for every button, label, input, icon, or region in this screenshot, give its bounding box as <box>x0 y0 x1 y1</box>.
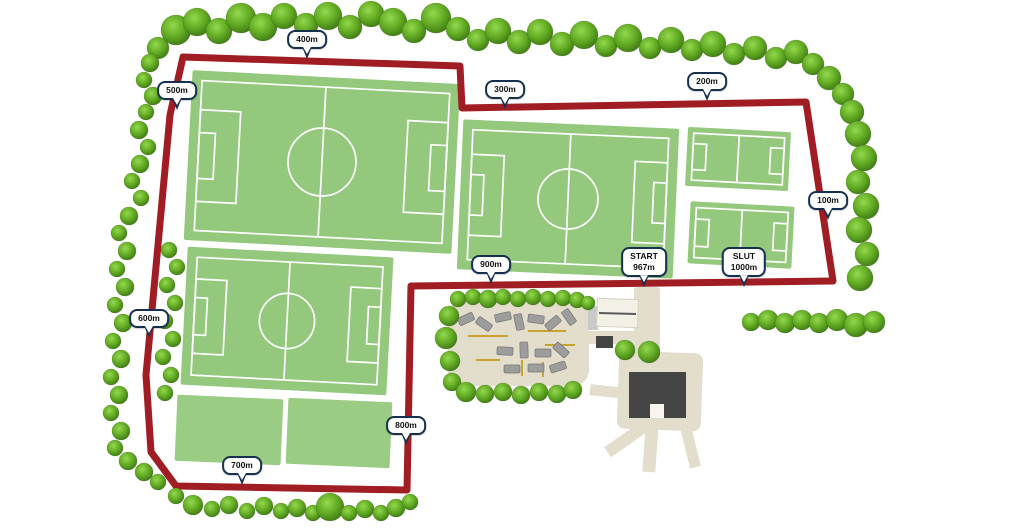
tree <box>110 386 128 404</box>
tree <box>111 225 127 241</box>
tree <box>845 121 871 147</box>
marker-label: 400m <box>296 34 318 45</box>
tree <box>743 36 767 60</box>
tree <box>809 313 829 333</box>
clubhouse-door <box>650 404 664 418</box>
marker-sublabel: 967m <box>630 262 658 273</box>
tree <box>595 35 617 57</box>
route-marker-300m: 300m <box>485 80 525 99</box>
tree <box>116 278 134 296</box>
tree <box>639 37 661 59</box>
tree <box>165 331 181 347</box>
marker-label: 800m <box>395 420 417 431</box>
tree <box>742 313 760 331</box>
route-marker-500m: 500m <box>157 81 197 100</box>
pitch-full <box>181 247 394 396</box>
marker-label: 600m <box>138 313 160 324</box>
route-marker-400m: 400m <box>287 30 327 49</box>
tree <box>494 383 512 401</box>
route-marker-start: START967m <box>621 247 667 277</box>
tree <box>107 297 123 313</box>
route-marker-finish: SLUT1000m <box>722 247 766 277</box>
tree <box>510 291 526 307</box>
tree <box>564 381 582 399</box>
tree <box>758 310 778 330</box>
course-map: 100m 200m 300m 400m 500m 600m 700m 800m … <box>0 0 1024 529</box>
tree <box>103 405 119 421</box>
marker-label: 200m <box>696 76 718 87</box>
tree <box>112 422 130 440</box>
tree <box>168 488 184 504</box>
tree <box>847 265 873 291</box>
tree <box>840 100 864 124</box>
tree <box>356 500 374 518</box>
marker-label: SLUT <box>731 251 757 262</box>
tree <box>204 501 220 517</box>
tree <box>479 290 497 308</box>
tree <box>140 139 156 155</box>
tree <box>581 296 595 310</box>
tree <box>157 385 173 401</box>
route-marker-600m: 600m <box>129 309 169 328</box>
tree <box>476 385 494 403</box>
tree <box>548 385 566 403</box>
tree <box>435 327 457 349</box>
tree <box>863 311 885 333</box>
tree <box>723 43 745 65</box>
tree <box>570 21 598 49</box>
parked-car <box>520 342 529 358</box>
tree <box>239 503 255 519</box>
pitch-full <box>184 70 461 254</box>
tree <box>792 310 812 330</box>
tree <box>138 104 154 120</box>
tree <box>103 369 119 385</box>
tree <box>112 350 130 368</box>
tree <box>273 503 289 519</box>
tree <box>456 382 476 402</box>
tree <box>163 367 179 383</box>
tree <box>130 121 148 139</box>
tree <box>615 340 635 360</box>
tree <box>495 289 511 305</box>
tree <box>851 145 877 171</box>
tree <box>150 474 166 490</box>
marker-label: START <box>630 251 658 262</box>
tree <box>118 242 136 260</box>
route-marker-100m: 100m <box>808 191 848 210</box>
tree <box>465 289 481 305</box>
marker-label: 300m <box>494 84 516 95</box>
tree <box>658 27 684 53</box>
tree <box>131 155 149 173</box>
small-outbuilding <box>596 336 613 348</box>
route-marker-900m: 900m <box>471 255 511 274</box>
marker-label: 700m <box>231 460 253 471</box>
tree <box>530 383 548 401</box>
parked-car <box>535 349 551 357</box>
tree <box>775 313 795 333</box>
tree <box>512 386 530 404</box>
marker-label: 500m <box>166 85 188 96</box>
tree <box>855 242 879 266</box>
tree <box>220 496 238 514</box>
tree <box>440 351 460 371</box>
tree <box>288 499 306 517</box>
parked-car <box>528 364 544 372</box>
parked-car <box>497 347 513 356</box>
parked-car <box>504 365 520 373</box>
tree <box>255 497 273 515</box>
parked-car <box>528 314 545 324</box>
tree <box>525 289 541 305</box>
tree <box>105 333 121 349</box>
pitch-grass <box>175 395 284 466</box>
marker-sublabel: 1000m <box>731 262 757 273</box>
tree <box>681 39 703 61</box>
pitch-plain <box>175 395 284 466</box>
tree <box>109 261 125 277</box>
pitch-small <box>685 127 791 191</box>
tree <box>141 54 159 72</box>
tree <box>169 259 185 275</box>
tree <box>135 463 153 481</box>
pitch-plain <box>286 398 393 468</box>
pavilion-roof-ridge <box>599 313 636 314</box>
route-marker-700m: 700m <box>222 456 262 475</box>
tree <box>341 505 357 521</box>
tree <box>540 291 556 307</box>
marker-label: 900m <box>480 259 502 270</box>
tree <box>161 242 177 258</box>
tree <box>700 31 726 57</box>
tree <box>159 277 175 293</box>
tree <box>124 173 140 189</box>
tree <box>338 15 362 39</box>
route-marker-200m: 200m <box>687 72 727 91</box>
tree <box>316 493 344 521</box>
tree <box>527 19 553 45</box>
tree <box>183 495 203 515</box>
tree <box>155 349 171 365</box>
tree <box>136 72 152 88</box>
tree <box>450 291 466 307</box>
tree <box>133 190 149 206</box>
tree <box>120 207 138 225</box>
tree <box>402 494 418 510</box>
tree <box>446 17 470 41</box>
tree <box>846 217 872 243</box>
tree <box>638 341 660 363</box>
route-marker-800m: 800m <box>386 416 426 435</box>
tree <box>853 193 879 219</box>
tree <box>765 47 787 69</box>
tree <box>614 24 642 52</box>
tree <box>373 505 389 521</box>
pitch-grass <box>286 398 393 468</box>
tree <box>439 306 459 326</box>
tree <box>271 3 297 29</box>
tree <box>555 290 571 306</box>
marker-label: 100m <box>817 195 839 206</box>
tree <box>846 170 870 194</box>
tree <box>167 295 183 311</box>
tree <box>119 452 137 470</box>
tree <box>107 440 123 456</box>
